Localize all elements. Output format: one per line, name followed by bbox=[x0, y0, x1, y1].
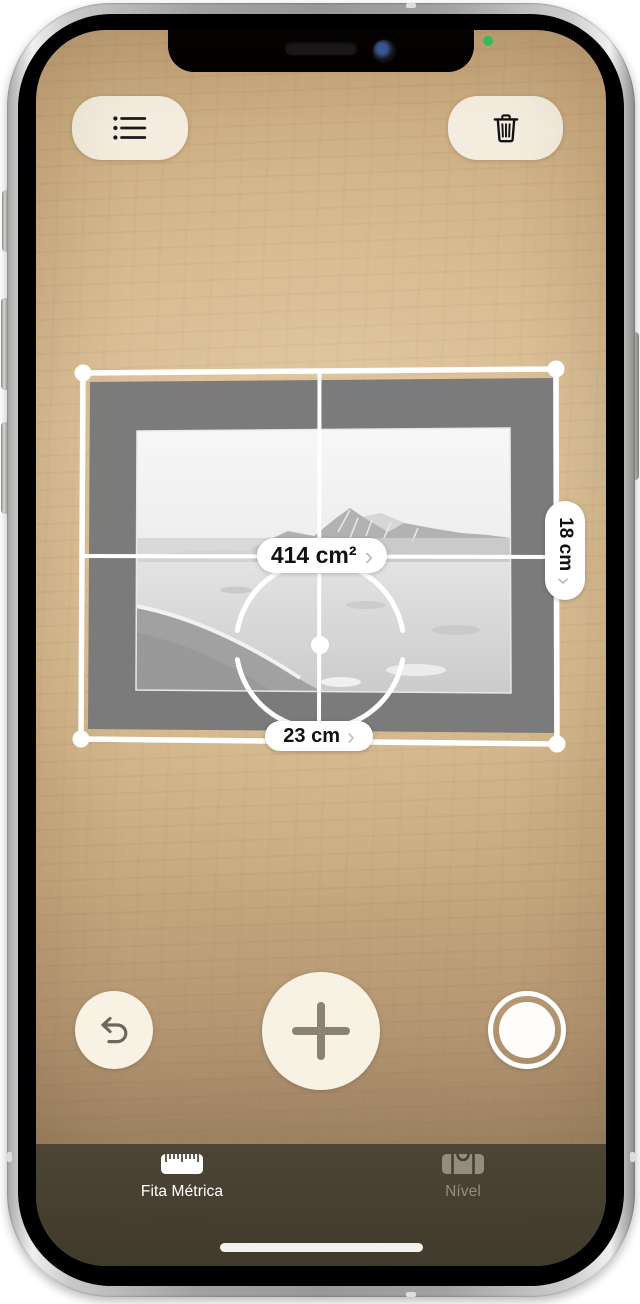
screenshot-root: 414 cm² › 23 cm › 18 cm › bbox=[0, 0, 640, 1304]
antenna-line bbox=[630, 1152, 635, 1162]
undo-button[interactable] bbox=[75, 991, 153, 1069]
width-measurement-pill[interactable]: 23 cm › bbox=[265, 721, 373, 751]
corner-handle-top-right[interactable] bbox=[548, 361, 565, 378]
height-value: 18 cm bbox=[554, 517, 576, 571]
tab-nivel[interactable]: Nível bbox=[383, 1153, 543, 1201]
area-measurement-pill[interactable]: 414 cm² › bbox=[257, 538, 387, 573]
corner-handle-bottom-left[interactable] bbox=[73, 731, 90, 748]
area-value: 414 cm² bbox=[271, 542, 357, 569]
tab-label: Fita Métrica bbox=[141, 1183, 223, 1201]
phone-frame: 414 cm² › 23 cm › 18 cm › bbox=[7, 3, 635, 1297]
chevron-right-icon: › bbox=[347, 725, 355, 748]
shutter-icon bbox=[499, 1002, 555, 1058]
antenna-line bbox=[7, 1152, 12, 1162]
corner-handle-top-left[interactable] bbox=[75, 365, 92, 382]
add-measurement-button[interactable] bbox=[262, 972, 380, 1090]
level-icon bbox=[441, 1153, 485, 1175]
tab-fita-metrica[interactable]: Fita Métrica bbox=[102, 1153, 262, 1201]
corner-handle-bottom-right[interactable] bbox=[549, 736, 566, 753]
antenna-line bbox=[406, 1292, 416, 1297]
chevron-down-icon: › bbox=[554, 577, 577, 585]
home-indicator[interactable] bbox=[220, 1243, 423, 1252]
reticle-center-dot bbox=[311, 636, 329, 654]
antenna-line bbox=[406, 3, 416, 8]
ruler-icon bbox=[160, 1153, 204, 1175]
app-screen: 414 cm² › 23 cm › 18 cm › bbox=[36, 30, 606, 1266]
shutter-button[interactable] bbox=[488, 991, 566, 1069]
tab-label: Nível bbox=[445, 1183, 481, 1201]
height-measurement-pill[interactable]: 18 cm › bbox=[545, 501, 585, 600]
width-value: 23 cm bbox=[283, 725, 340, 748]
plus-icon bbox=[291, 1001, 351, 1061]
undo-arrow-icon bbox=[96, 1012, 132, 1048]
chevron-right-icon: › bbox=[365, 543, 374, 569]
